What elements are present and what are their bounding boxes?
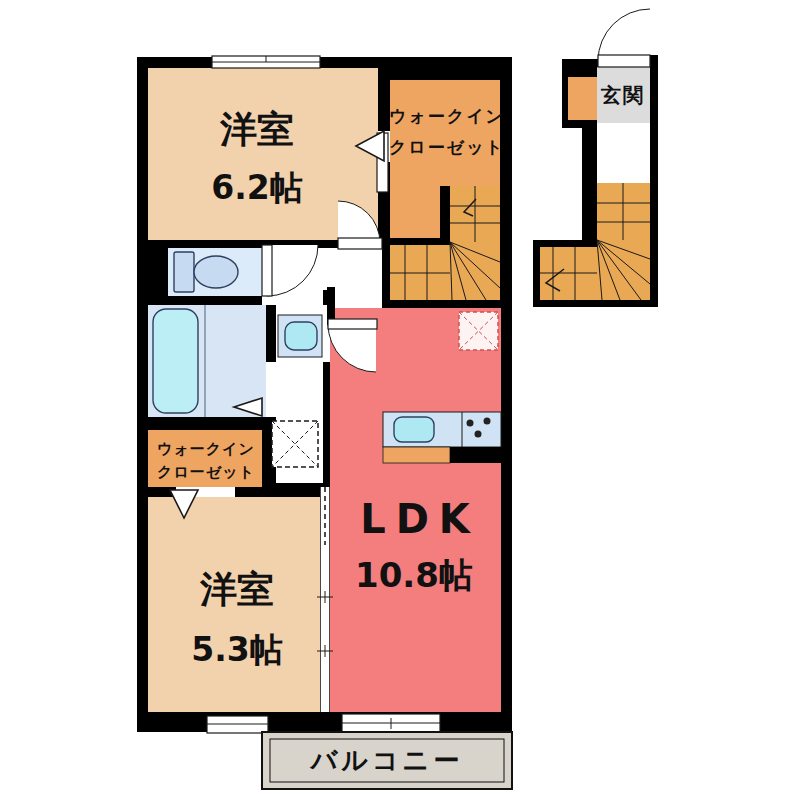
floor-plan: 洋室 6.2帖 ウォークイン クローゼット 玄関 LDK 10.8帖 ウォークイ… — [0, 0, 800, 795]
bedroom2-label: 洋室 — [200, 571, 274, 608]
window-top — [212, 56, 320, 68]
bathtub-icon — [153, 305, 205, 417]
door-leaf — [338, 238, 382, 249]
wic2-label-line1: ウォークイン — [157, 442, 255, 457]
bedroom1-size-label: 6.2帖 — [211, 171, 302, 204]
annex-wall — [562, 77, 569, 127]
window-bedroom2-balcony — [207, 716, 268, 733]
refrigerator-space — [459, 312, 498, 350]
ldk-size-label: 10.8帖 — [355, 558, 473, 592]
counter-cabinet — [383, 447, 450, 463]
genkan-closet — [568, 77, 597, 120]
door-leaf — [598, 55, 650, 67]
wall-opening — [266, 362, 276, 417]
annex-wall — [562, 59, 598, 77]
washing-machine-space — [272, 421, 318, 467]
door-swing-area — [598, 9, 650, 61]
toilet-fixture-icon — [174, 252, 238, 292]
wic1-label-line2: クローゼット — [389, 139, 505, 156]
balcony-label: バルコニー — [311, 747, 463, 773]
ldk-label: LDK — [360, 499, 480, 539]
annex-wall — [582, 128, 597, 247]
washbasin-icon — [278, 315, 322, 357]
annex-wall — [533, 240, 540, 307]
bedroom1-label: 洋室 — [220, 111, 294, 148]
door-leaf — [262, 245, 272, 296]
annex-wall — [533, 300, 658, 307]
annex-wall — [562, 120, 597, 128]
entrance-annex — [533, 9, 658, 307]
wic2-label-line2: クローゼット — [157, 465, 255, 480]
entrance-door — [598, 9, 650, 67]
kitchen-wall-stub — [450, 447, 501, 463]
genkan-label: 玄関 — [601, 85, 645, 105]
window-ldk-balcony — [342, 714, 440, 733]
annex-wall — [533, 240, 597, 247]
wic1-label-line1: ウォークイン — [389, 108, 505, 125]
kitchen-sink-icon — [394, 417, 434, 442]
annex-wall — [650, 55, 658, 307]
kitchen-counter — [383, 412, 501, 463]
bedroom2-size-label: 5.3帖 — [191, 633, 282, 666]
door-leaf — [328, 319, 377, 329]
